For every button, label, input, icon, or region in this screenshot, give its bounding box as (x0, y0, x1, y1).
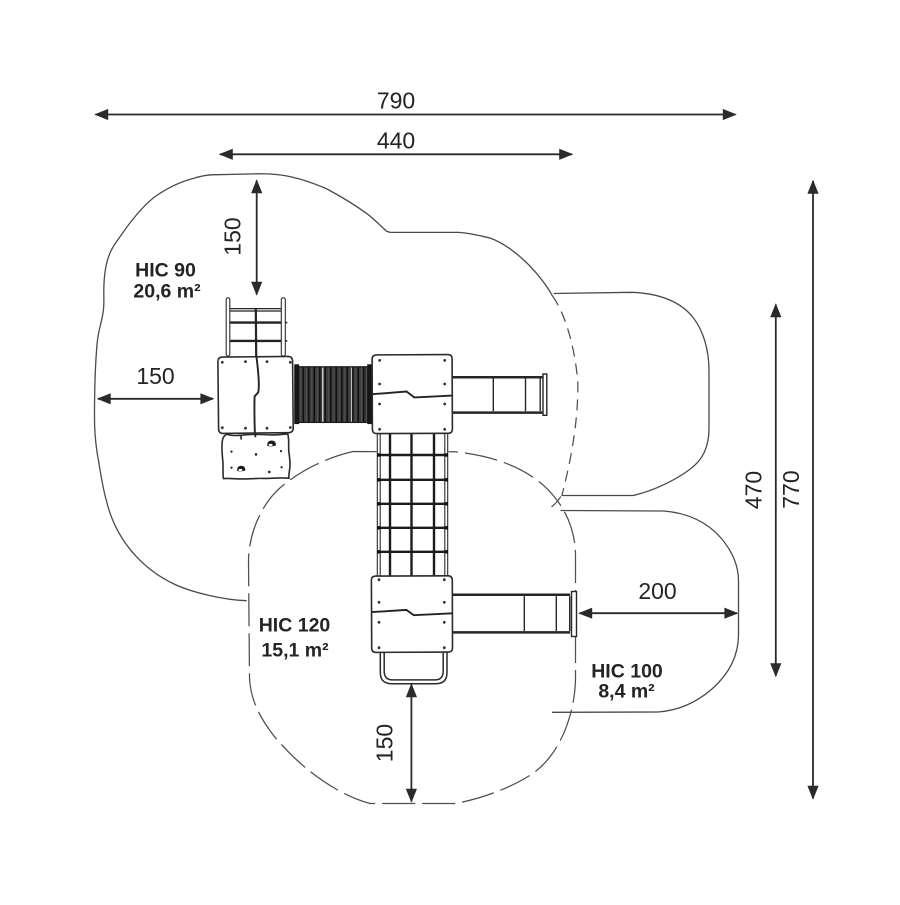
svg-text:15,1 m²: 15,1 m² (261, 639, 329, 661)
svg-text:HIC 100: HIC 100 (591, 660, 663, 682)
svg-text:200: 200 (638, 578, 676, 604)
svg-text:HIC 90: HIC 90 (135, 259, 196, 281)
svg-text:470: 470 (741, 471, 767, 509)
svg-text:150: 150 (136, 363, 174, 389)
svg-text:790: 790 (377, 88, 415, 114)
svg-text:20,6 m²: 20,6 m² (133, 281, 201, 303)
svg-text:770: 770 (778, 470, 804, 508)
svg-text:440: 440 (377, 127, 415, 153)
svg-text:150: 150 (372, 724, 398, 762)
svg-text:HIC 120: HIC 120 (259, 614, 331, 636)
svg-text:150: 150 (220, 217, 246, 255)
svg-text:8,4 m²: 8,4 m² (598, 681, 655, 703)
